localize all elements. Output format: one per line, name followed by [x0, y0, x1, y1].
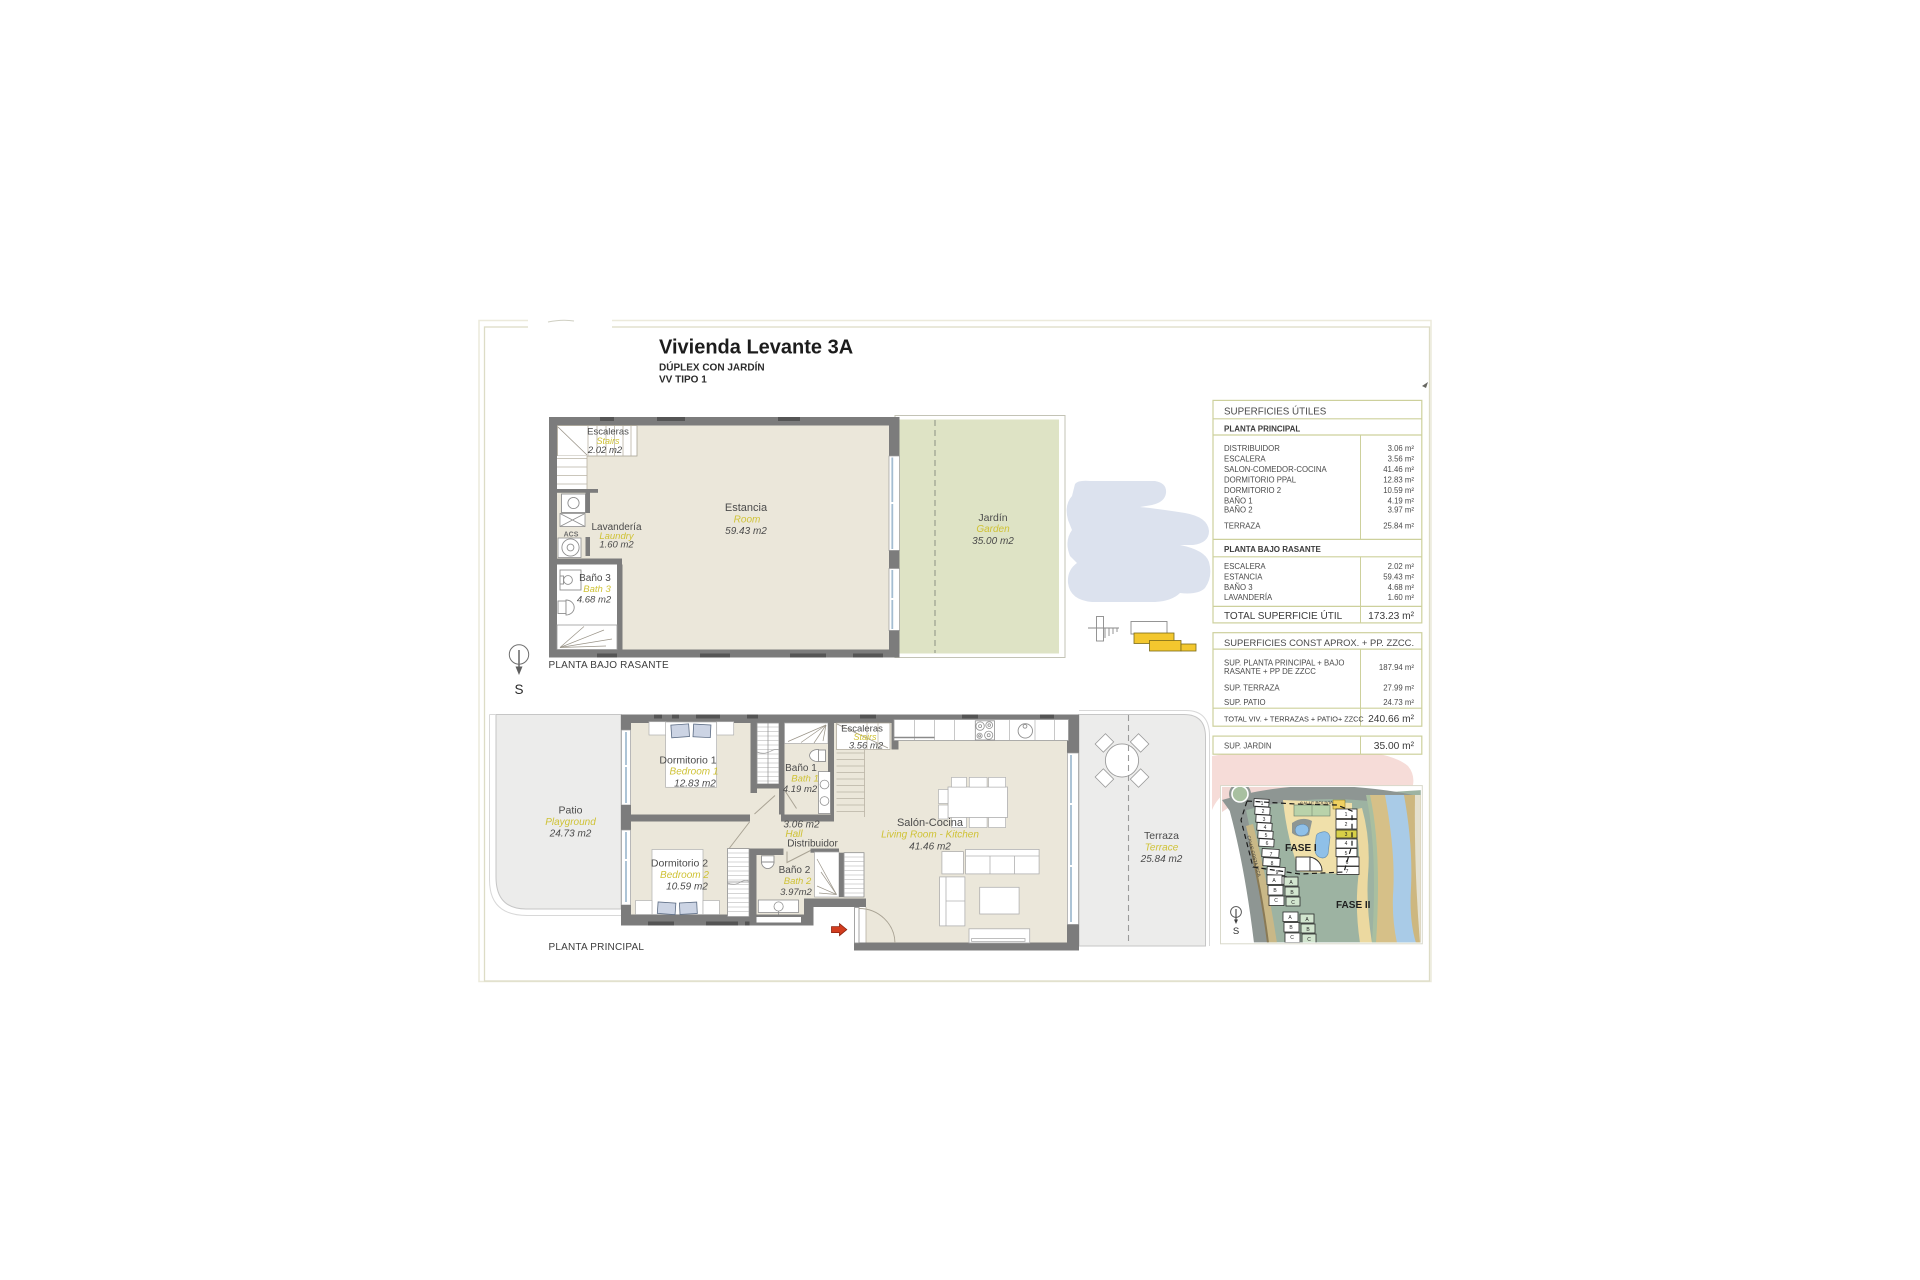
- svg-text:RASANTE + PP DE ZZCC: RASANTE + PP DE ZZCC: [1224, 667, 1316, 676]
- svg-text:DÚPLEX CON JARDÍN: DÚPLEX CON JARDÍN: [659, 361, 765, 374]
- svg-text:Room: Room: [734, 515, 761, 526]
- svg-text:Baño 2: Baño 2: [779, 865, 811, 876]
- svg-text:Jardín: Jardín: [978, 512, 1007, 524]
- svg-text:3.06 m²: 3.06 m²: [1388, 444, 1415, 453]
- svg-text:PLANTA PRINCIPAL: PLANTA PRINCIPAL: [1224, 425, 1300, 434]
- svg-text:4: 4: [1345, 841, 1348, 847]
- svg-text:DISTRIBUIDOR: DISTRIBUIDOR: [1224, 444, 1280, 453]
- svg-text:8: 8: [1271, 861, 1274, 867]
- svg-text:3.97 m²: 3.97 m²: [1388, 506, 1415, 515]
- svg-text:5: 5: [1345, 851, 1348, 857]
- svg-text:59.43 m2: 59.43 m2: [725, 526, 767, 537]
- svg-text:BAÑO 3: BAÑO 3: [1224, 583, 1253, 592]
- svg-text:35.00 m²: 35.00 m²: [1374, 741, 1415, 752]
- svg-text:Baño 3: Baño 3: [579, 573, 611, 584]
- svg-text:Patio: Patio: [559, 805, 583, 817]
- svg-text:Bath 2: Bath 2: [784, 876, 812, 887]
- svg-text:Vivienda Levante 3A: Vivienda Levante 3A: [659, 337, 853, 359]
- svg-text:Playground: Playground: [545, 817, 596, 828]
- svg-text:1: 1: [1261, 801, 1264, 807]
- svg-text:3.97m2: 3.97m2: [780, 887, 812, 898]
- svg-text:TERRAZA: TERRAZA: [1224, 522, 1261, 531]
- svg-text:25.84 m²: 25.84 m²: [1383, 522, 1414, 531]
- svg-text:24.73 m²: 24.73 m²: [1383, 698, 1414, 707]
- svg-text:4.19 m²: 4.19 m²: [1388, 497, 1415, 506]
- svg-text:2.02 m2: 2.02 m2: [587, 445, 623, 456]
- svg-text:PLANTA BAJO RASANTE: PLANTA BAJO RASANTE: [549, 660, 669, 671]
- svg-text:4.68 m2: 4.68 m2: [577, 595, 612, 606]
- svg-text:25.84 m2: 25.84 m2: [1140, 854, 1183, 865]
- svg-text:2.02 m²: 2.02 m²: [1388, 562, 1415, 571]
- svg-text:240.66 m²: 240.66 m²: [1368, 714, 1414, 725]
- svg-text:ACS: ACS: [564, 532, 579, 539]
- svg-text:10.59 m2: 10.59 m2: [666, 882, 708, 893]
- svg-text:Bath 3: Bath 3: [583, 584, 611, 595]
- svg-text:5: 5: [1265, 833, 1268, 839]
- svg-text:Bedroom 2: Bedroom 2: [660, 870, 709, 881]
- svg-text:1.60 m2: 1.60 m2: [599, 540, 634, 551]
- svg-text:27.99 m²: 27.99 m²: [1383, 684, 1414, 693]
- svg-text:SALON-COMEDOR-COCINA: SALON-COMEDOR-COCINA: [1224, 465, 1327, 474]
- svg-text:DORMITORIO PPAL: DORMITORIO PPAL: [1224, 476, 1297, 485]
- svg-text:SUPERFICIES ÚTILES: SUPERFICIES ÚTILES: [1224, 407, 1327, 418]
- svg-text:3: 3: [1345, 832, 1348, 838]
- svg-text:41.46 m²: 41.46 m²: [1383, 465, 1414, 474]
- svg-text:59.43 m²: 59.43 m²: [1383, 573, 1414, 582]
- svg-text:2: 2: [1262, 809, 1265, 815]
- svg-text:24.73 m2: 24.73 m2: [549, 829, 592, 840]
- svg-text:C: C: [1274, 898, 1278, 904]
- svg-text:7: 7: [1346, 869, 1349, 875]
- svg-text:TOTAL SUPERFICIE ÚTIL: TOTAL SUPERFICIE ÚTIL: [1224, 609, 1343, 622]
- svg-text:10.59 m²: 10.59 m²: [1383, 486, 1414, 495]
- svg-text:2: 2: [1345, 822, 1348, 828]
- svg-text:3.56 m2: 3.56 m2: [849, 741, 884, 752]
- svg-text:SUPERFICIES CONST APROX. + PP.: SUPERFICIES CONST APROX. + PP. ZZCC.: [1224, 637, 1414, 648]
- svg-text:7: 7: [1270, 852, 1273, 858]
- svg-text:Garden: Garden: [976, 524, 1010, 535]
- svg-text:12.83 m2: 12.83 m2: [674, 779, 716, 790]
- svg-text:C: C: [1290, 935, 1294, 941]
- svg-text:1: 1: [1345, 812, 1348, 818]
- svg-text:ESCALERA: ESCALERA: [1224, 562, 1266, 571]
- svg-text:VV TIPO 1: VV TIPO 1: [659, 375, 707, 386]
- svg-text:BAÑO 1: BAÑO 1: [1224, 497, 1253, 506]
- svg-text:Distribuidor: Distribuidor: [787, 839, 838, 850]
- svg-text:Terrace: Terrace: [1145, 843, 1179, 854]
- svg-text:Bedroom 1: Bedroom 1: [670, 767, 719, 778]
- svg-text:4.68 m²: 4.68 m²: [1388, 583, 1415, 592]
- svg-text:187.94 m²: 187.94 m²: [1379, 663, 1415, 672]
- svg-text:TOTAL VIV. + TERRAZAS + PATIO+: TOTAL VIV. + TERRAZAS + PATIO+ ZZCC: [1224, 715, 1364, 724]
- svg-text:6: 6: [1266, 841, 1269, 847]
- svg-text:12.83 m²: 12.83 m²: [1383, 476, 1414, 485]
- svg-text:PLANTA PRINCIPAL: PLANTA PRINCIPAL: [549, 942, 645, 953]
- svg-text:SUP. PATIO: SUP. PATIO: [1224, 698, 1266, 707]
- svg-text:35.00 m2: 35.00 m2: [972, 536, 1014, 547]
- svg-text:Salón-Cocina: Salón-Cocina: [897, 817, 964, 829]
- svg-text:Dormitorio 2: Dormitorio 2: [651, 858, 708, 870]
- svg-text:SUP. JARDIN: SUP. JARDIN: [1224, 742, 1272, 751]
- svg-text:BAÑO 2: BAÑO 2: [1224, 506, 1253, 515]
- svg-text:4: 4: [1264, 825, 1267, 831]
- svg-text:FASE I: FASE I: [1285, 843, 1317, 854]
- svg-text:4.19 m2: 4.19 m2: [783, 784, 818, 795]
- svg-text:ESCALERA: ESCALERA: [1224, 455, 1266, 464]
- svg-text:ESTANCIA: ESTANCIA: [1224, 573, 1263, 582]
- svg-text:S: S: [514, 682, 523, 697]
- svg-text:41.46 m2: 41.46 m2: [909, 842, 951, 853]
- svg-text:Baño 1: Baño 1: [785, 763, 817, 774]
- svg-text:3.56 m²: 3.56 m²: [1388, 455, 1415, 464]
- svg-text:S: S: [1233, 926, 1239, 937]
- svg-text:FASE II: FASE II: [1336, 900, 1371, 911]
- svg-text:173.23 m²: 173.23 m²: [1368, 611, 1414, 622]
- svg-text:Terraza: Terraza: [1144, 830, 1179, 842]
- svg-text:Estancia: Estancia: [725, 502, 768, 514]
- svg-text:Living Room - Kitchen: Living Room - Kitchen: [881, 830, 979, 841]
- svg-text:1.60 m²: 1.60 m²: [1388, 593, 1415, 602]
- svg-text:Bath 1: Bath 1: [791, 774, 818, 785]
- svg-text:SUP. TERRAZA: SUP. TERRAZA: [1224, 684, 1280, 693]
- svg-text:3: 3: [1263, 817, 1266, 823]
- svg-text:C: C: [1291, 900, 1295, 906]
- svg-text:PLANTA BAJO RASANTE: PLANTA BAJO RASANTE: [1224, 545, 1322, 554]
- svg-text:Dormitorio 1: Dormitorio 1: [659, 755, 716, 767]
- svg-text:LAVANDERÍA: LAVANDERÍA: [1224, 593, 1273, 602]
- svg-text:C: C: [1307, 937, 1311, 943]
- svg-text:DORMITORIO 2: DORMITORIO 2: [1224, 486, 1281, 495]
